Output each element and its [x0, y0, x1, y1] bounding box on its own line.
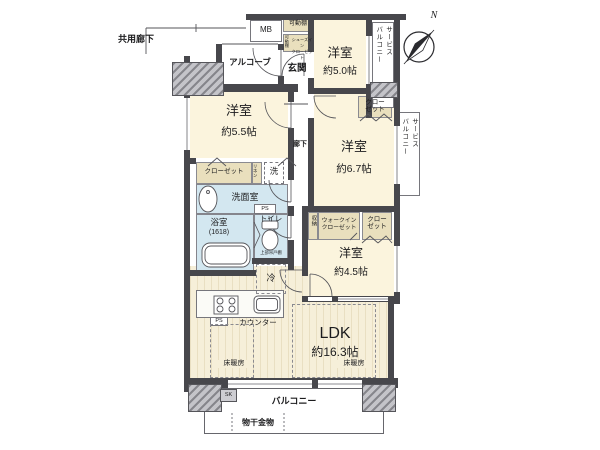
- wall: [388, 302, 394, 378]
- closet-5-5-label: クローゼット: [196, 168, 252, 175]
- wall: [308, 88, 372, 94]
- wall: [308, 118, 314, 210]
- room-6-7-size: 約6.7帖: [323, 163, 385, 175]
- wic-label: ウォークイン クローゼット: [318, 218, 360, 231]
- window: [394, 246, 400, 292]
- room-5-5-size: 約5.5帖: [208, 126, 270, 138]
- meter-box-label: MB: [250, 25, 282, 34]
- ldk-name: LDK: [300, 325, 370, 343]
- wall: [288, 206, 294, 216]
- counter-label: カウンター: [232, 319, 284, 328]
- toilet-label: トイレ: [256, 215, 286, 224]
- ldk-size: 約16.3帖: [292, 346, 378, 360]
- wall: [190, 270, 256, 276]
- washer-label: 洗: [264, 167, 284, 177]
- toilet-ps-label: PS: [254, 206, 276, 212]
- common-corridor-label: 共用廊下: [112, 34, 160, 44]
- genkan-label: 玄関: [284, 64, 310, 75]
- wall: [302, 206, 398, 212]
- floor-heating-left-label: 床暖房: [216, 360, 252, 368]
- washroom-label: 洗面室: [222, 192, 268, 202]
- room-west-5-5: [190, 92, 288, 158]
- pillar: [172, 62, 224, 96]
- wall: [394, 184, 400, 246]
- balcony-label: バルコニー: [264, 396, 324, 406]
- kitchen-ps-label: PS: [210, 318, 228, 324]
- drying-fixture-label: 物干金物: [234, 418, 282, 427]
- pillar: [362, 384, 396, 412]
- room-5-0-size: 約5.0帖: [309, 66, 371, 78]
- floor-plan: 共用廊下 アルコーブ MB 可動棚 可動棚 シューズイン クローゼット 玄関 廊…: [0, 0, 600, 450]
- closet-4-5-label: クロー ゼット: [362, 216, 392, 231]
- room-4-5-size: 約4.5帖: [320, 267, 382, 279]
- toilet-note-label: 上部吊戸棚: [253, 251, 289, 256]
- compass-icon: [404, 30, 434, 64]
- fridge-label: 冷: [256, 273, 286, 283]
- wall: [394, 20, 400, 126]
- wall: [288, 92, 294, 102]
- bath-label: 浴室: [204, 218, 234, 228]
- bath-size-label: (1618): [200, 229, 238, 237]
- sic-shelf-label: 可動棚: [284, 35, 289, 51]
- hallway-label: 廊下: [290, 141, 310, 149]
- wall: [188, 158, 196, 164]
- room-6-7-name: 洋室: [328, 140, 380, 155]
- wall: [278, 76, 284, 92]
- room-4-5-name: 洋室: [325, 247, 377, 261]
- wall: [246, 14, 406, 20]
- service-balcony-right-label: サービス バルコニー: [399, 118, 419, 192]
- pillar: [188, 384, 222, 412]
- compass-n-label: N: [426, 10, 442, 22]
- room-5-0-name: 洋室: [314, 46, 366, 60]
- window: [184, 98, 190, 150]
- room-5-5-name: 洋室: [213, 104, 265, 119]
- wall: [302, 212, 308, 276]
- window: [228, 380, 312, 388]
- shuno-label: 収納: [310, 215, 316, 239]
- floor-heating-right-label: 床暖房: [336, 360, 372, 368]
- linen-label: リネン: [253, 164, 258, 182]
- kitchen-counter: [196, 290, 284, 318]
- slop-sink-label: SK: [220, 392, 237, 398]
- floor-heating-left: [210, 324, 254, 378]
- movable-shelf-label: 可動棚: [283, 21, 313, 28]
- shoes-in-closet-label: シューズイン クローゼット: [291, 37, 313, 61]
- sliding-door-gap: [308, 297, 332, 301]
- service-balcony-top-label: サービス バルコニー: [373, 26, 393, 106]
- alcove-label: アルコーブ: [223, 58, 277, 68]
- window: [318, 380, 362, 388]
- wall: [252, 258, 290, 264]
- window: [338, 297, 388, 301]
- wall: [288, 128, 294, 180]
